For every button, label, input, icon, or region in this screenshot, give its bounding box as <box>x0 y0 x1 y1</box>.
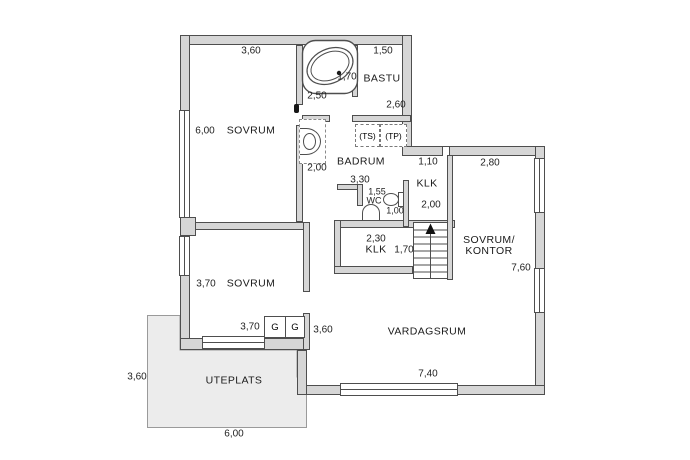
window <box>202 336 265 349</box>
dim-sovrum1-height: 6,00 <box>195 126 214 137</box>
room-label-badrum: BADRUM <box>337 157 385 168</box>
wall-segment <box>297 350 307 395</box>
dim-bastu-height: 2,60 <box>386 100 405 111</box>
stairs-icon <box>413 222 448 279</box>
dim-uteplats-width: 6,00 <box>224 429 243 440</box>
dim-klk-lower-width: 2,30 <box>366 234 385 245</box>
dim-kontor-height: 7,60 <box>511 263 530 274</box>
room-label-sovrum-kontor-line2: KONTOR <box>463 246 515 257</box>
door-marker-icon <box>294 104 299 113</box>
dim-sovrum1-width: 3,60 <box>241 46 260 57</box>
room-label-uteplats: UTEPLATS <box>206 376 263 387</box>
wardrobe-g1-label: G <box>271 322 278 333</box>
wall-segment <box>180 35 412 45</box>
dim-vardagsrum-width: 7,40 <box>418 369 437 380</box>
washbasin-icon <box>303 133 316 150</box>
wall-segment <box>402 146 443 156</box>
wall-segment <box>449 146 545 156</box>
room-label-klk-upper: KLK <box>416 179 437 190</box>
wardrobe-g2: G <box>285 316 305 338</box>
appliance-ts: (TS) <box>355 124 380 147</box>
window <box>179 236 190 276</box>
dim-badrum-width: 3,30 <box>350 175 369 186</box>
window <box>340 383 458 396</box>
dim-bastu-width: 1,50 <box>373 46 392 57</box>
window <box>179 110 190 218</box>
appliance-tp-label: (TP) <box>385 131 402 141</box>
dim-badrum-left-height: 2,00 <box>307 163 326 174</box>
dim-wc-depth: 1,00 <box>386 206 404 217</box>
room-label-vardagsrum: VARDAGSRUM <box>388 327 466 338</box>
dim-kontor-top-right: 2,80 <box>480 158 499 169</box>
dim-sovrum2-height: 3,70 <box>196 279 215 290</box>
room-label-bastu: BASTU <box>363 74 400 85</box>
room-label-sovrum-1: SOVRUM <box>227 126 276 137</box>
dim-bath-area-height: 2,50 <box>307 91 326 102</box>
wall-segment <box>303 222 310 292</box>
dim-kontor-top-left: 1,10 <box>418 157 437 168</box>
appliance-ts-label: (TS) <box>359 131 376 141</box>
window <box>534 268 545 313</box>
dim-wc-width: 1,55 <box>368 187 386 198</box>
wardrobe-g2-label: G <box>291 322 298 333</box>
wardrobe-g1: G <box>264 316 286 338</box>
wall-segment <box>180 217 196 236</box>
dim-sovrum2-width: 3,70 <box>240 322 259 333</box>
bathtub-icon <box>301 39 359 97</box>
dim-bathtub: 1,70 <box>337 72 356 83</box>
wall-segment <box>180 222 308 230</box>
wall-segment <box>334 266 413 274</box>
dim-uteplats-height: 3,60 <box>127 372 146 383</box>
wall-segment <box>352 115 411 122</box>
floor-plan: (TS) (TP) G G SOVRUM SOVRUM BADRUM BASTU… <box>0 0 690 460</box>
wall-segment <box>357 184 363 206</box>
dim-klk-upper-height: 2,00 <box>421 200 440 211</box>
room-label-sovrum-kontor: SOVRUM/ KONTOR <box>463 235 515 257</box>
dim-klk-lower-height: 1,70 <box>394 245 413 256</box>
window <box>534 158 545 213</box>
appliance-tp: (TP) <box>380 124 407 147</box>
wall-notch <box>442 146 450 155</box>
dim-hall-width: 3,60 <box>313 325 332 336</box>
room-label-sovrum-2: SOVRUM <box>227 279 276 290</box>
room-label-klk-lower: KLK <box>365 245 386 256</box>
